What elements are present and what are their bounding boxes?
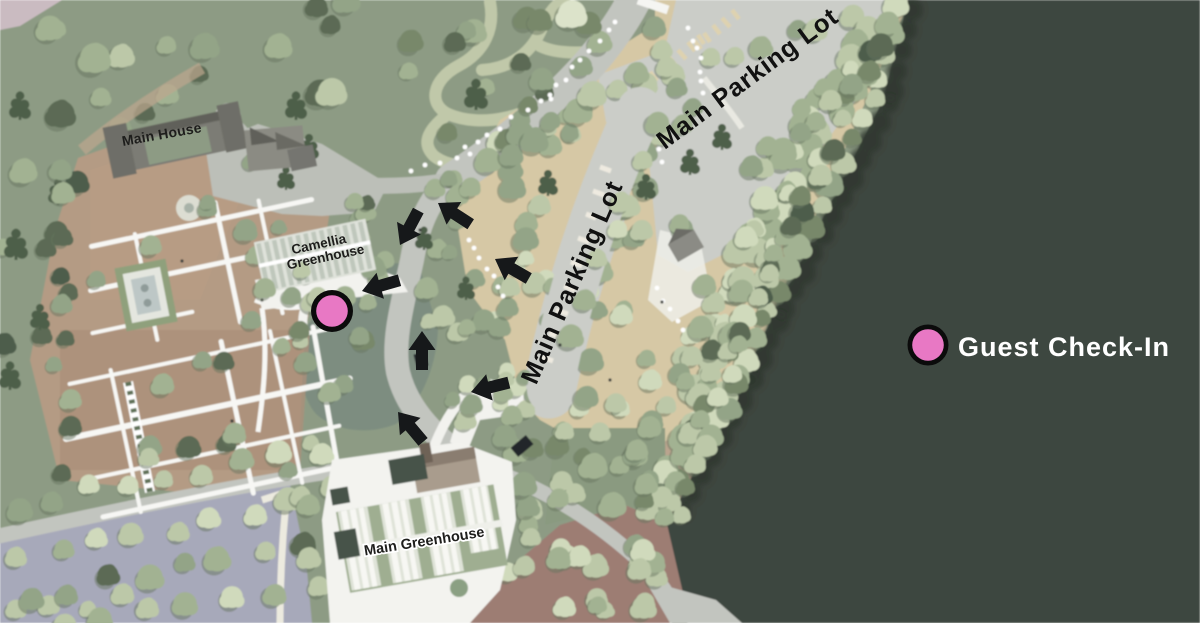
- svg-text:Guest Check-In: Guest Check-In: [958, 332, 1170, 362]
